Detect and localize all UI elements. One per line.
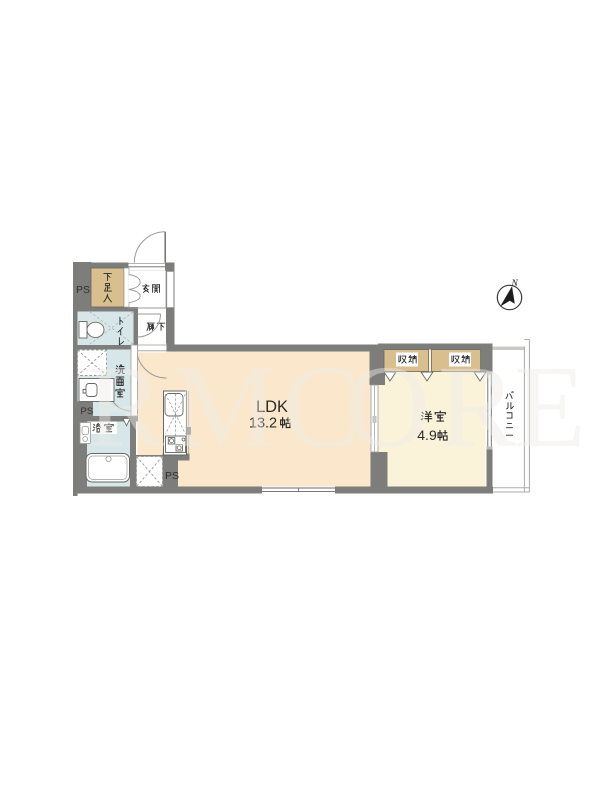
svg-text:R: R (438, 341, 517, 472)
svg-text:E: E (514, 341, 586, 472)
svg-text:M: M (172, 341, 277, 472)
svg-text:PS: PS (76, 284, 90, 296)
svg-text:O: O (345, 341, 430, 472)
svg-text:R: R (86, 341, 165, 472)
svg-text:N: N (511, 279, 519, 289)
